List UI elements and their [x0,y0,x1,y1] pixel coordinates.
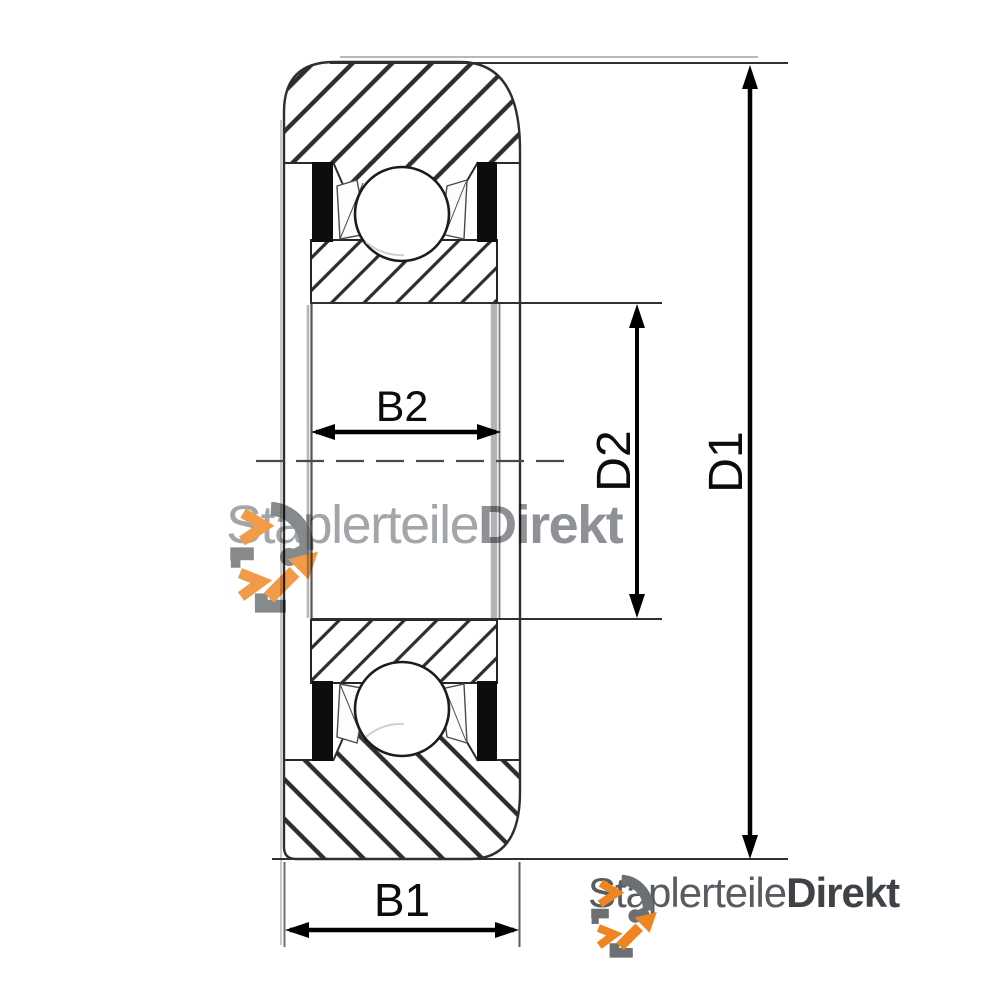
rotation-arrows-icon [588,872,668,960]
dimension-annotations: B2 B1 D2 D1 [0,0,1000,1000]
dimension-d2: D2 [588,304,645,618]
footer-logo: StaplerteileDirekt [588,872,899,914]
dimension-b1: B1 [285,874,519,938]
dimension-d1: D1 [700,65,758,859]
dimension-label-b1: B1 [374,874,430,926]
dimension-label-d2: D2 [588,430,641,491]
bearing-diagram-page: StaplerteileDirekt B2 B1 D2 [0,0,1000,1000]
dimension-label-b2: B2 [376,383,429,431]
dimension-label-d1: D1 [700,431,753,492]
footer-logo-text-bold: Direkt [786,869,899,916]
dimension-b2: B2 [311,383,501,440]
